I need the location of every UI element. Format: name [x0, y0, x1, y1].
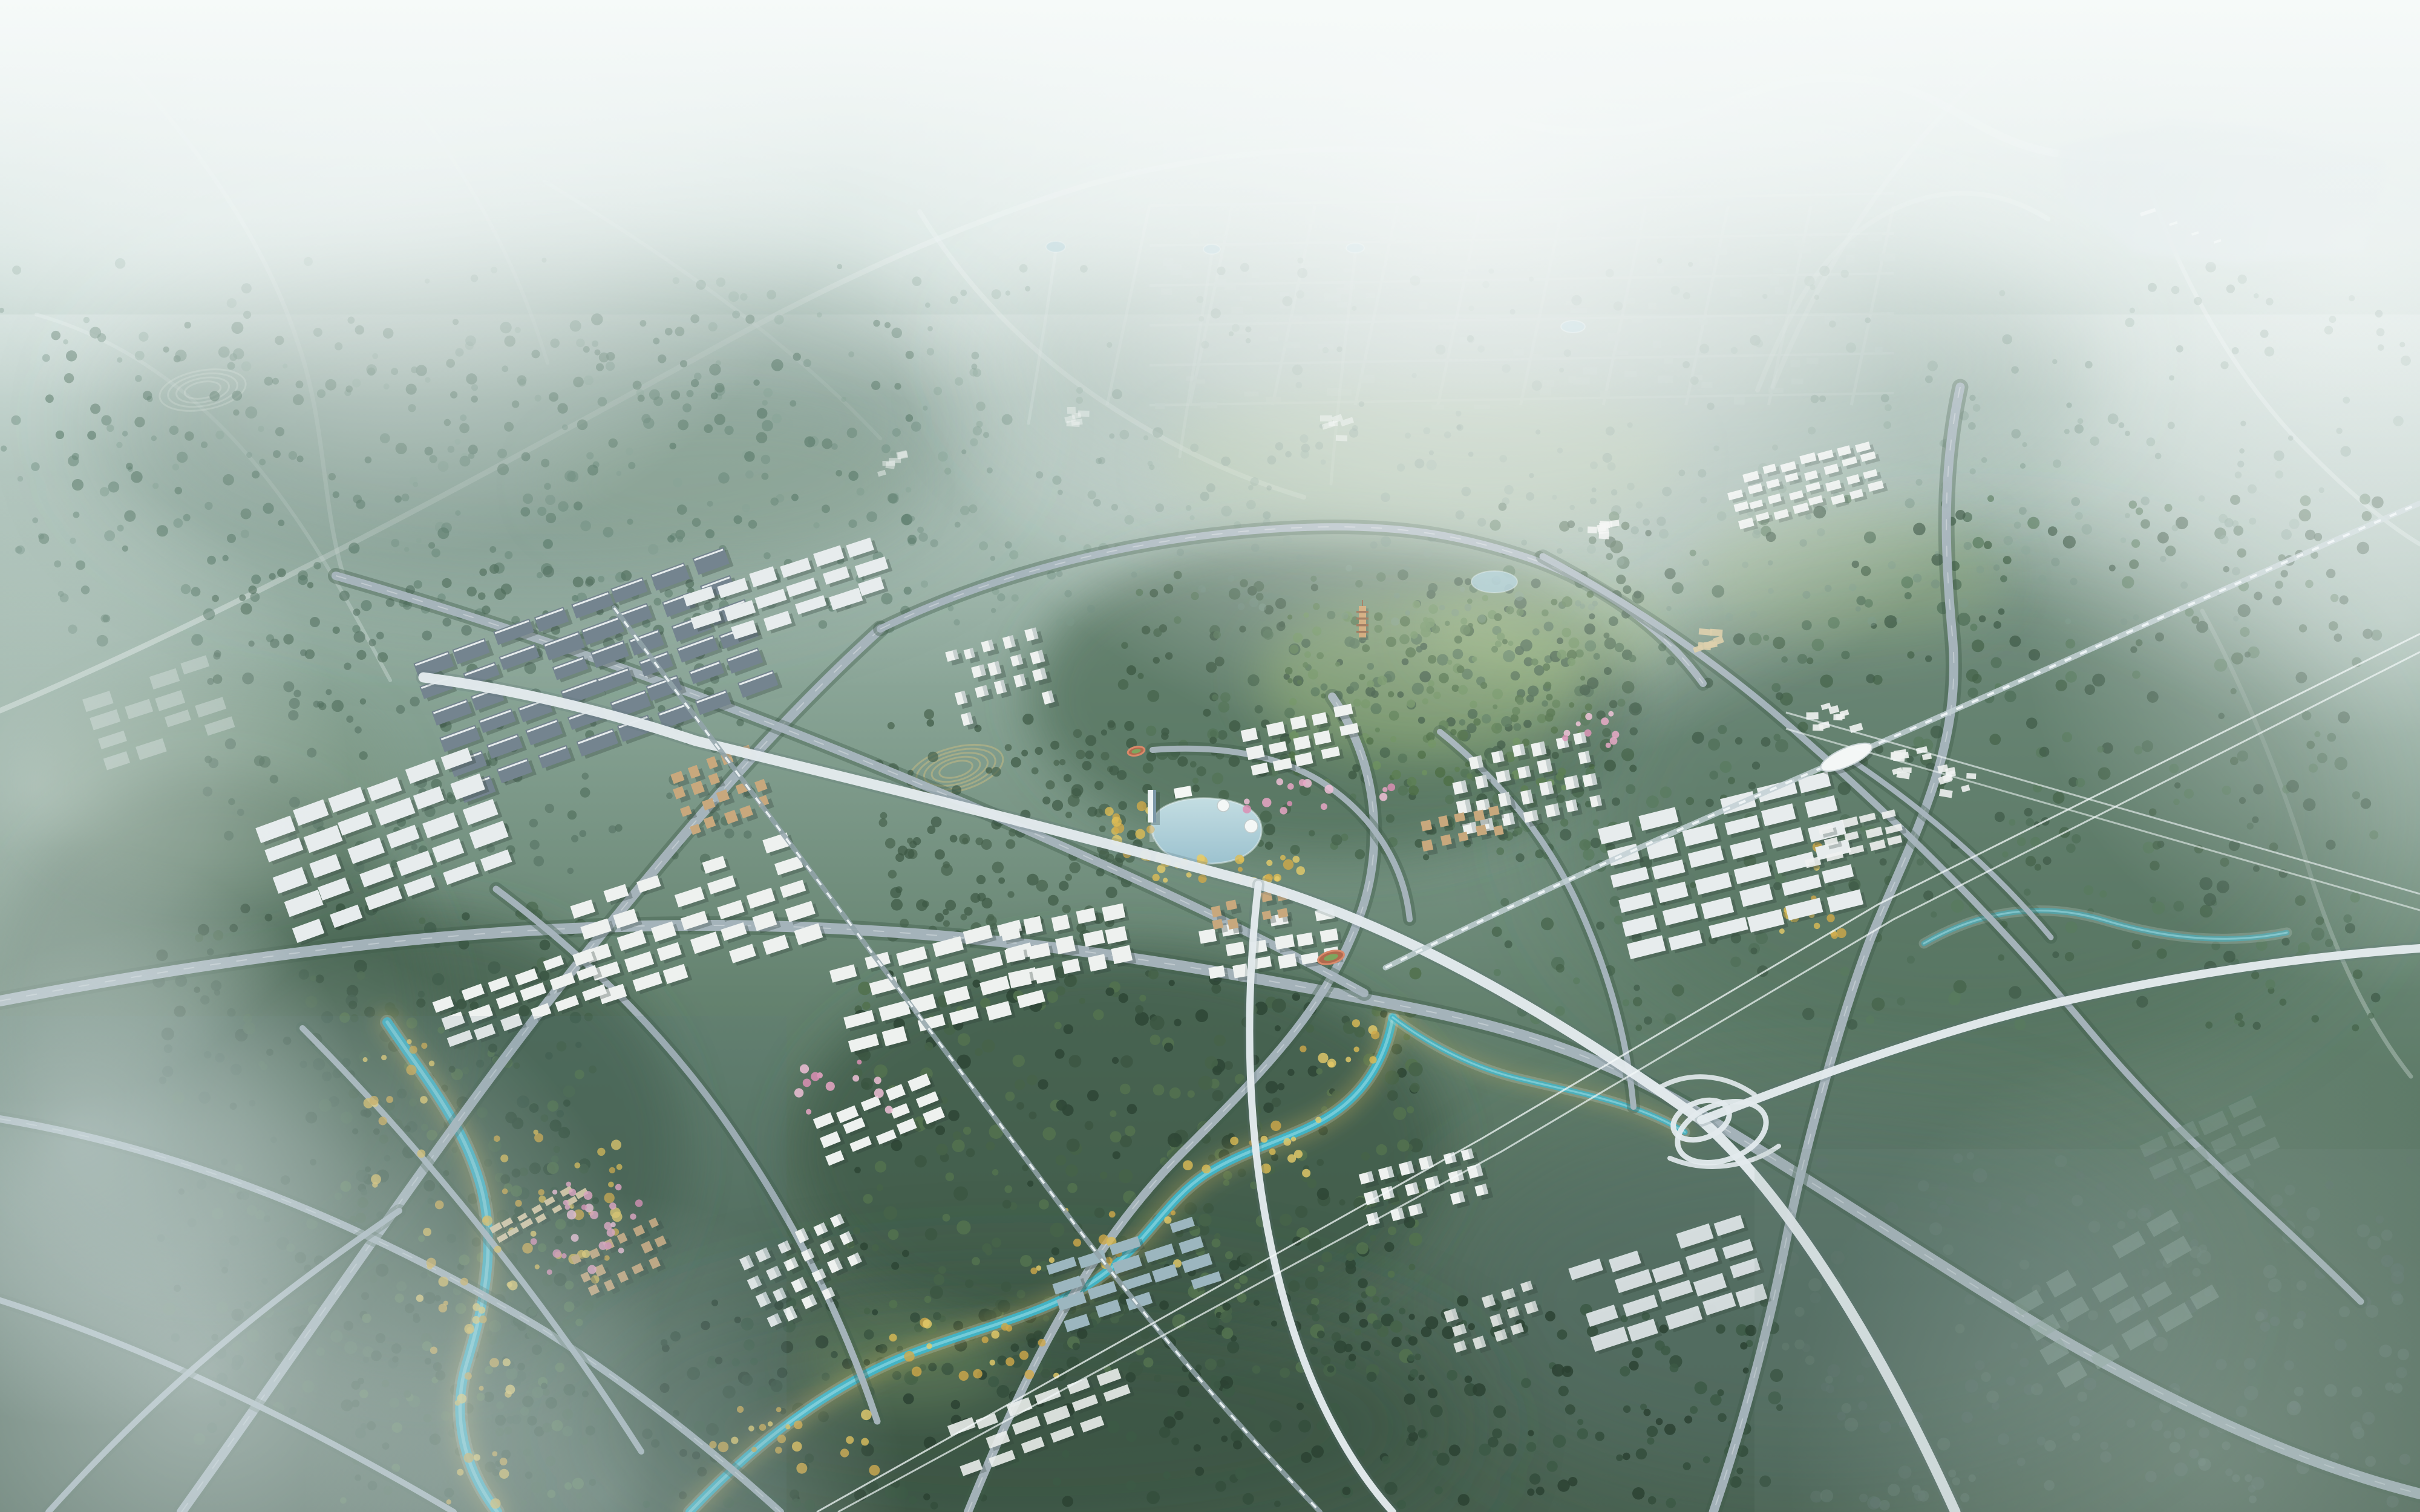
aerial-city-masterplan-rendering [0, 0, 2420, 1512]
lake-pavilion [1217, 800, 1229, 812]
lake-pavilion [1244, 820, 1258, 833]
horizon-haze [0, 0, 2420, 399]
scene-canvas [0, 0, 2420, 1512]
